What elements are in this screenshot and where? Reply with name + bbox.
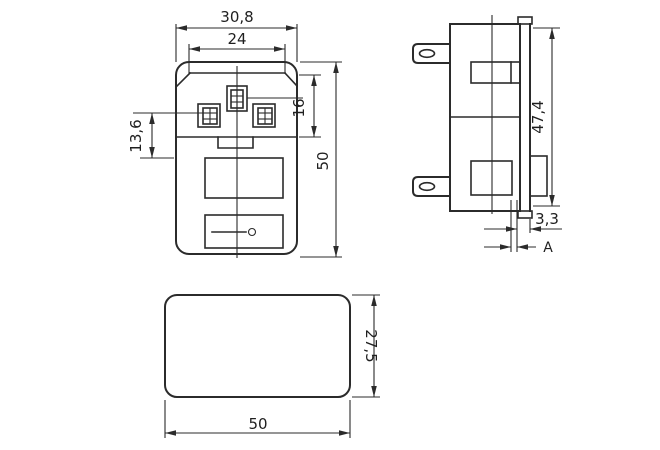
dim-pin-depth-label: 16 [290, 98, 308, 117]
dim-bottom-width-label: 50 [248, 415, 267, 433]
dim-pin-offset: 13,6 [127, 113, 205, 158]
dim-outer-width-label: 30,8 [220, 8, 253, 26]
right-pin [253, 104, 275, 127]
dim-recess-width-label: 24 [227, 30, 246, 48]
dim-flange-lip: 3,3 [484, 210, 562, 233]
dim-panel-thickness-label: A [543, 240, 553, 256]
terminal-tab-top [413, 44, 450, 63]
dim-depth: 27,5 [352, 295, 380, 397]
dim-bottom-width: 50 [165, 400, 350, 438]
bottom-view: 27,5 50 [165, 295, 380, 438]
earth-pin [227, 86, 247, 111]
drawing-canvas: 30,8 24 16 13,6 50 [0, 0, 660, 450]
dim-pin-offset-label: 13,6 [127, 119, 145, 152]
technical-drawing: 30,8 24 16 13,6 50 [0, 0, 660, 450]
dim-flange-height: 47,4 [529, 28, 560, 206]
front-view: 30,8 24 16 13,6 50 [127, 8, 342, 258]
dim-front-height: 50 [300, 62, 342, 257]
dim-panel-thickness: A [484, 240, 553, 256]
left-pin [198, 104, 220, 127]
dim-flange-height-label: 47,4 [529, 100, 547, 133]
side-top-block [471, 62, 520, 83]
dim-front-height-label: 50 [314, 151, 332, 170]
terminal-tab-bottom [413, 177, 450, 196]
side-view: 47,4 3,3 A [413, 15, 562, 256]
dim-flange-lip-label: 3,3 [535, 210, 559, 228]
fuse-drawer [205, 215, 283, 248]
bottom-outline [165, 295, 350, 397]
dim-depth-label: 27,5 [362, 329, 380, 362]
